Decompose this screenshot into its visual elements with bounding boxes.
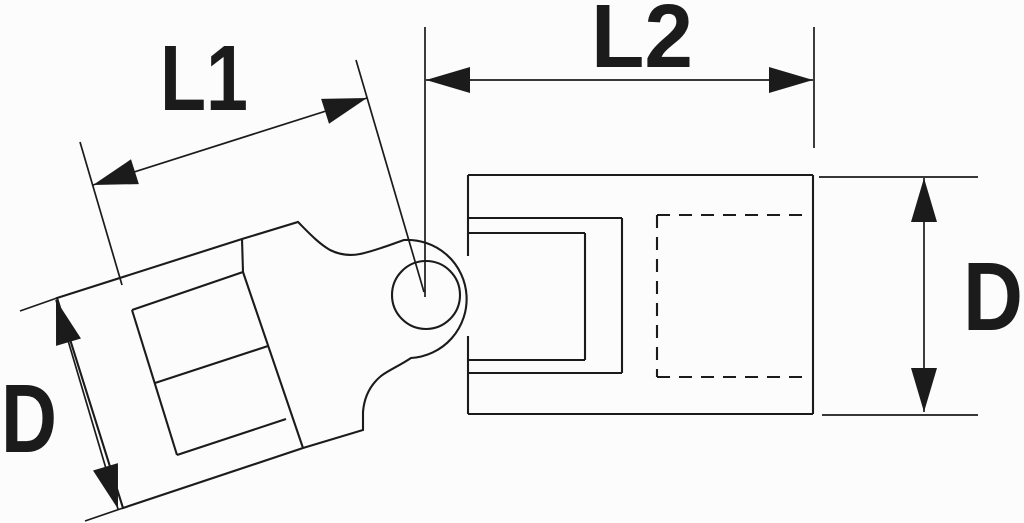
- dimension-labels: L1 L2 D D: [1, 0, 1023, 473]
- dimension-arrowhead: [56, 300, 81, 346]
- socket-inner-line: [132, 272, 243, 310]
- pin-hole-circle-group: [392, 261, 460, 329]
- dimension-arrowhead: [93, 159, 139, 185]
- drawing-canvas: L1 L2 D D: [0, 0, 1024, 523]
- hidden-square-drive: [657, 215, 810, 377]
- dimension-arrowhead: [769, 67, 813, 93]
- dimension-arrowhead: [426, 67, 470, 93]
- pin-hole-circle: [392, 261, 460, 329]
- socket-inner-line: [242, 239, 243, 272]
- socket-inner-line: [243, 272, 303, 448]
- drive-body-right-part: [468, 175, 813, 414]
- technical-drawing: L1 L2 D D: [0, 0, 1024, 523]
- socket-inner-line: [177, 419, 286, 455]
- dim-label-d-left: D: [1, 364, 57, 473]
- dimension-arrowhead: [911, 178, 937, 222]
- extension-line: [20, 298, 57, 311]
- dimension-arrowhead: [321, 98, 367, 124]
- dimension-arrowhead: [93, 463, 118, 509]
- socket-outline: [57, 222, 467, 508]
- dim-label-l2: L2: [591, 0, 693, 87]
- extension-line: [356, 60, 424, 292]
- socket-left-part: [57, 222, 467, 508]
- extension-line: [85, 508, 123, 521]
- socket-inner-line: [132, 310, 177, 455]
- dimension-arrowhead: [911, 368, 937, 412]
- dim-label-d-right: D: [963, 242, 1023, 351]
- socket-inner-line: [155, 346, 268, 383]
- extension-line: [80, 142, 122, 285]
- dim-label-l1: L1: [160, 26, 248, 130]
